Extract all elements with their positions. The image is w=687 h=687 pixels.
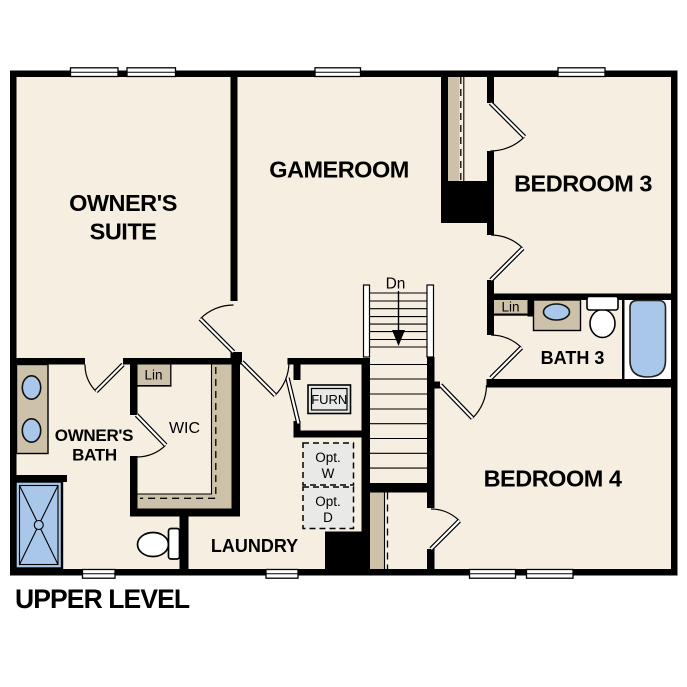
svg-text:Opt.: Opt. bbox=[315, 494, 341, 509]
svg-text:BATH 3: BATH 3 bbox=[541, 348, 605, 368]
svg-text:D: D bbox=[323, 510, 333, 525]
svg-text:BEDROOM 4: BEDROOM 4 bbox=[484, 466, 622, 492]
svg-text:Lin: Lin bbox=[144, 368, 162, 383]
svg-text:UPPER LEVEL: UPPER LEVEL bbox=[15, 584, 190, 614]
svg-text:FURN: FURN bbox=[311, 392, 347, 407]
svg-text:Opt.: Opt. bbox=[315, 450, 341, 465]
svg-text:LAUNDRY: LAUNDRY bbox=[211, 536, 298, 556]
svg-text:BATH: BATH bbox=[72, 446, 117, 465]
svg-text:OWNER'S: OWNER'S bbox=[55, 426, 133, 445]
svg-text:OWNER'S: OWNER'S bbox=[69, 190, 177, 216]
svg-text:W: W bbox=[322, 466, 335, 481]
svg-text:WIC: WIC bbox=[169, 420, 200, 437]
svg-text:Dn: Dn bbox=[386, 276, 406, 293]
svg-text:Lin: Lin bbox=[501, 300, 519, 315]
svg-text:BEDROOM 3: BEDROOM 3 bbox=[514, 171, 652, 197]
svg-text:GAMEROOM: GAMEROOM bbox=[269, 157, 409, 183]
svg-text:SUITE: SUITE bbox=[90, 219, 157, 245]
